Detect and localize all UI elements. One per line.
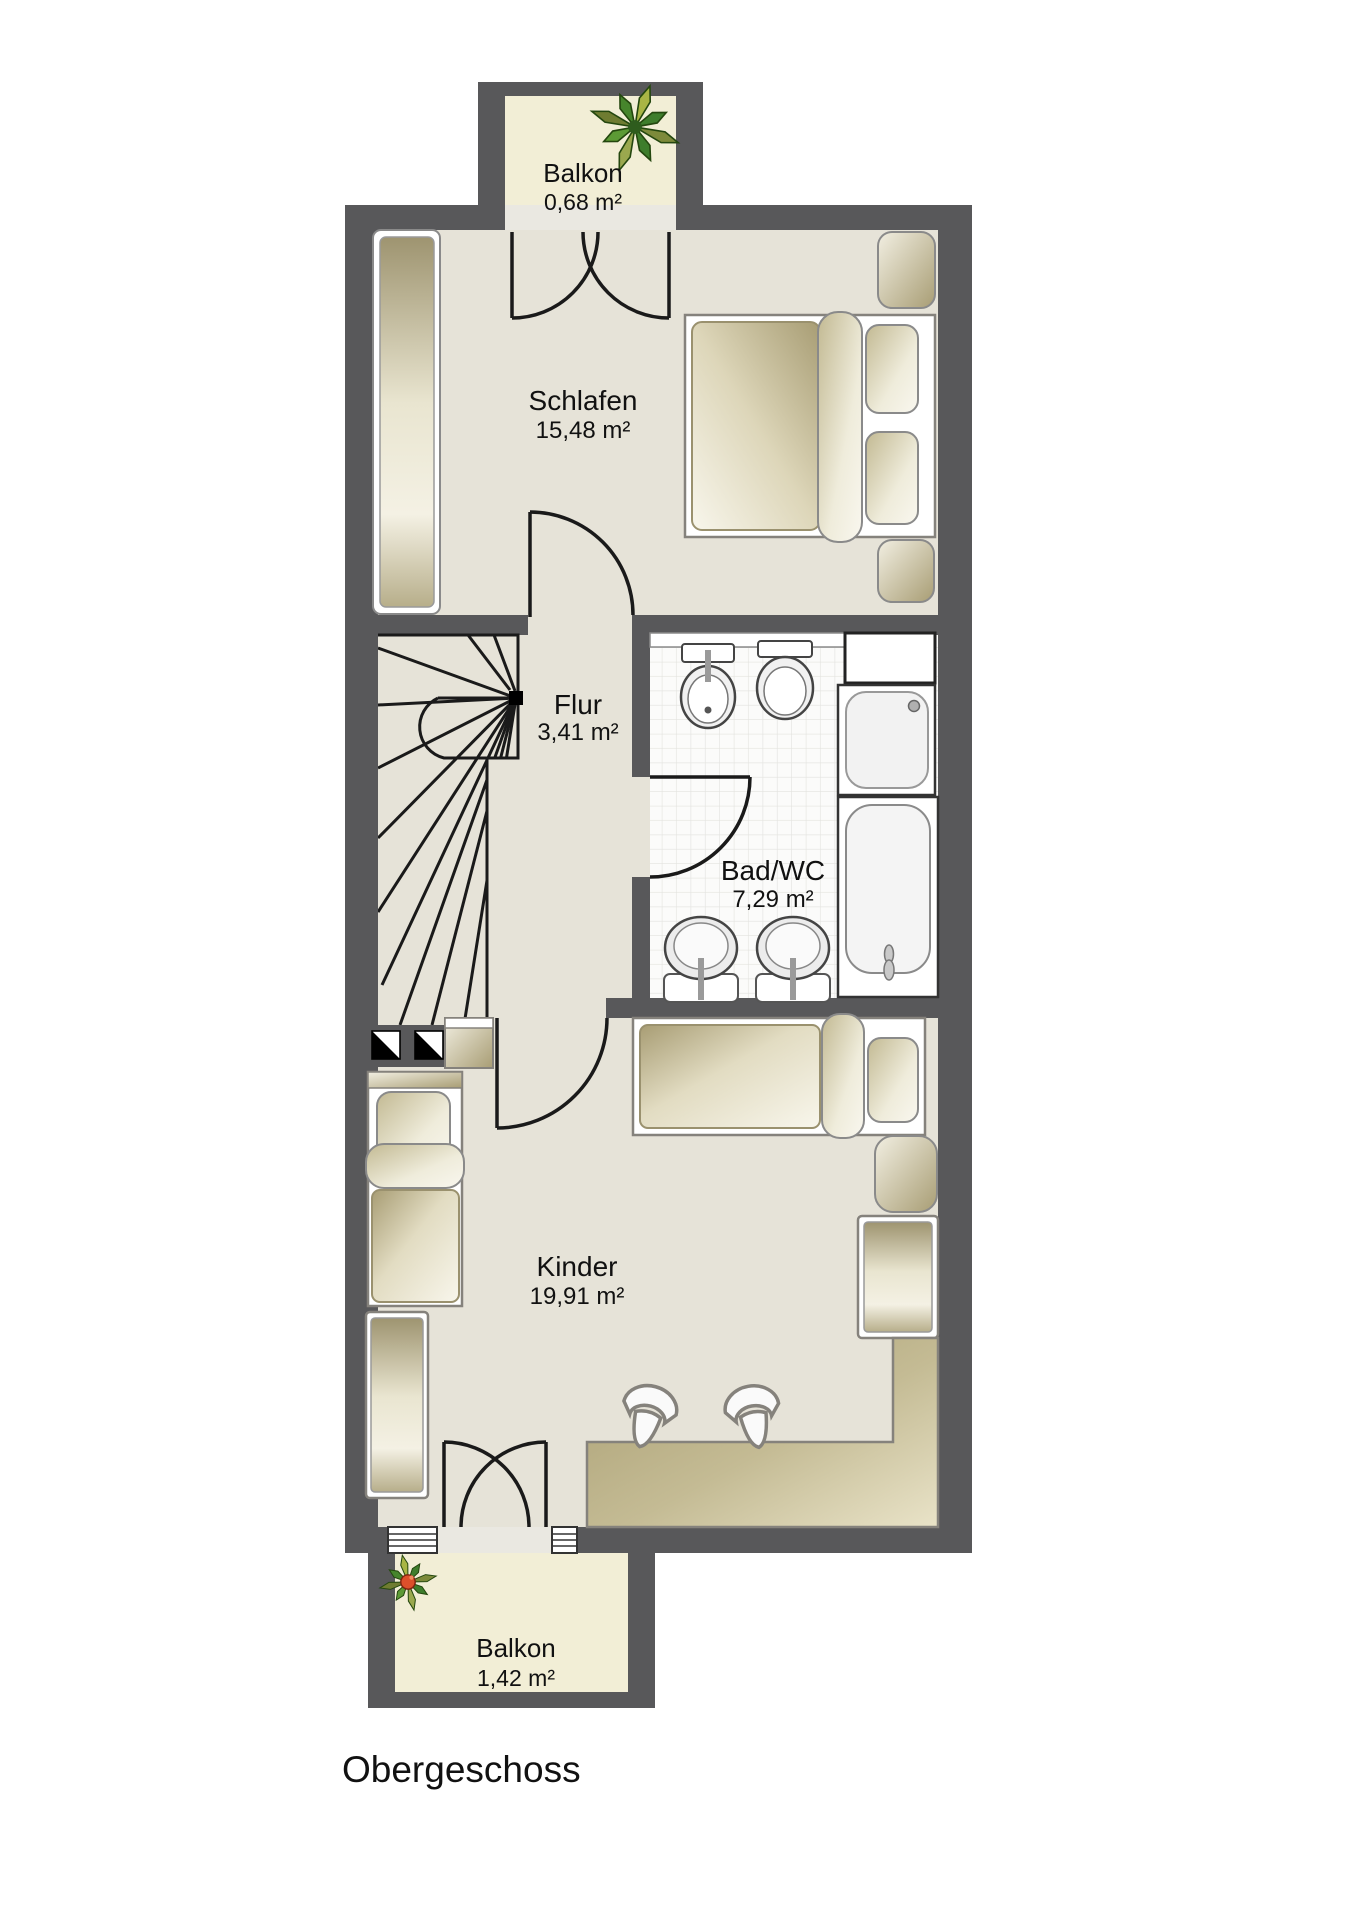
bidet <box>681 644 735 728</box>
balkon-top-label: Balkon <box>543 158 623 188</box>
blanket-roll <box>818 312 862 542</box>
wall-balcony-bottom-right <box>628 1553 655 1708</box>
bathtub <box>838 797 938 997</box>
wall-balcony-top-left <box>478 82 505 205</box>
wall-schlafen-flur <box>345 615 528 635</box>
tub-tap <box>884 945 894 980</box>
floor-plan: Balkon 0,68 m² Schlafen 15,48 m² Flur 3,… <box>0 0 1357 1920</box>
headboard <box>368 1072 462 1088</box>
bad-label: Bad/WC <box>721 855 825 886</box>
pillow <box>866 325 918 413</box>
schlafen-area: 15,48 m² <box>536 417 631 444</box>
wall-top-right <box>676 205 972 230</box>
wall-balcony-bottom-parapet <box>368 1692 655 1708</box>
balkon-bottom-label: Balkon <box>476 1633 556 1663</box>
mattress <box>640 1025 820 1128</box>
stair-newel <box>509 691 523 705</box>
bath-shelf <box>650 633 845 647</box>
bedside-cushion-bottom <box>878 540 934 602</box>
kinder-label: Kinder <box>537 1251 618 1282</box>
balkon-bottom-area: 1,42 m² <box>477 1665 555 1691</box>
bath-cabinet <box>845 633 935 683</box>
pillow <box>866 432 918 524</box>
wall-bad-left-lower <box>632 877 650 1018</box>
balcony-bottom-threshold <box>437 1527 552 1553</box>
balkon-top-area: 0,68 m² <box>544 189 622 215</box>
wall-balcony-bottom-left <box>368 1553 395 1708</box>
wall-balcony-top-parapet <box>478 82 703 96</box>
wall-bottom-right <box>577 1527 972 1553</box>
wall-bad-left-upper <box>632 615 650 777</box>
kinder-pouf <box>875 1136 937 1212</box>
blanket-roll <box>822 1014 864 1138</box>
bedside-cushion-top <box>878 232 935 308</box>
kinder-wardrobe-left <box>366 1312 428 1498</box>
washbasin-right <box>756 917 830 1002</box>
washbasin-left <box>664 917 738 1002</box>
schlafen-wardrobe <box>373 230 440 614</box>
blanket-roll <box>366 1144 464 1188</box>
window-bottom-left <box>388 1527 437 1553</box>
pillow <box>868 1038 918 1122</box>
shower <box>838 685 935 795</box>
kinder-bed-top <box>633 1014 925 1138</box>
bad-area: 7,29 m² <box>732 886 813 913</box>
mattress <box>372 1190 459 1302</box>
kinder-area: 19,91 m² <box>530 1283 625 1310</box>
wall-right <box>938 205 972 1553</box>
double-bed <box>685 312 935 542</box>
shaft-icon <box>372 1031 400 1059</box>
toilet <box>757 641 813 719</box>
schlafen-label: Schlafen <box>529 385 638 416</box>
flur-label: Flur <box>554 689 602 720</box>
wall-bottom-left <box>345 1527 388 1553</box>
shaft-icon <box>415 1031 443 1059</box>
page-title: Obergeschoss <box>342 1749 581 1790</box>
flur-area: 3,41 m² <box>537 719 618 746</box>
kinder-bed-left <box>366 1072 464 1306</box>
floor-plan-page: Balkon 0,68 m² Schlafen 15,48 m² Flur 3,… <box>0 0 1357 1920</box>
kinder-nightstand <box>445 1018 493 1068</box>
window-bottom-right <box>552 1527 577 1553</box>
kinder-wardrobe-right <box>858 1216 938 1338</box>
duvet <box>692 322 820 530</box>
